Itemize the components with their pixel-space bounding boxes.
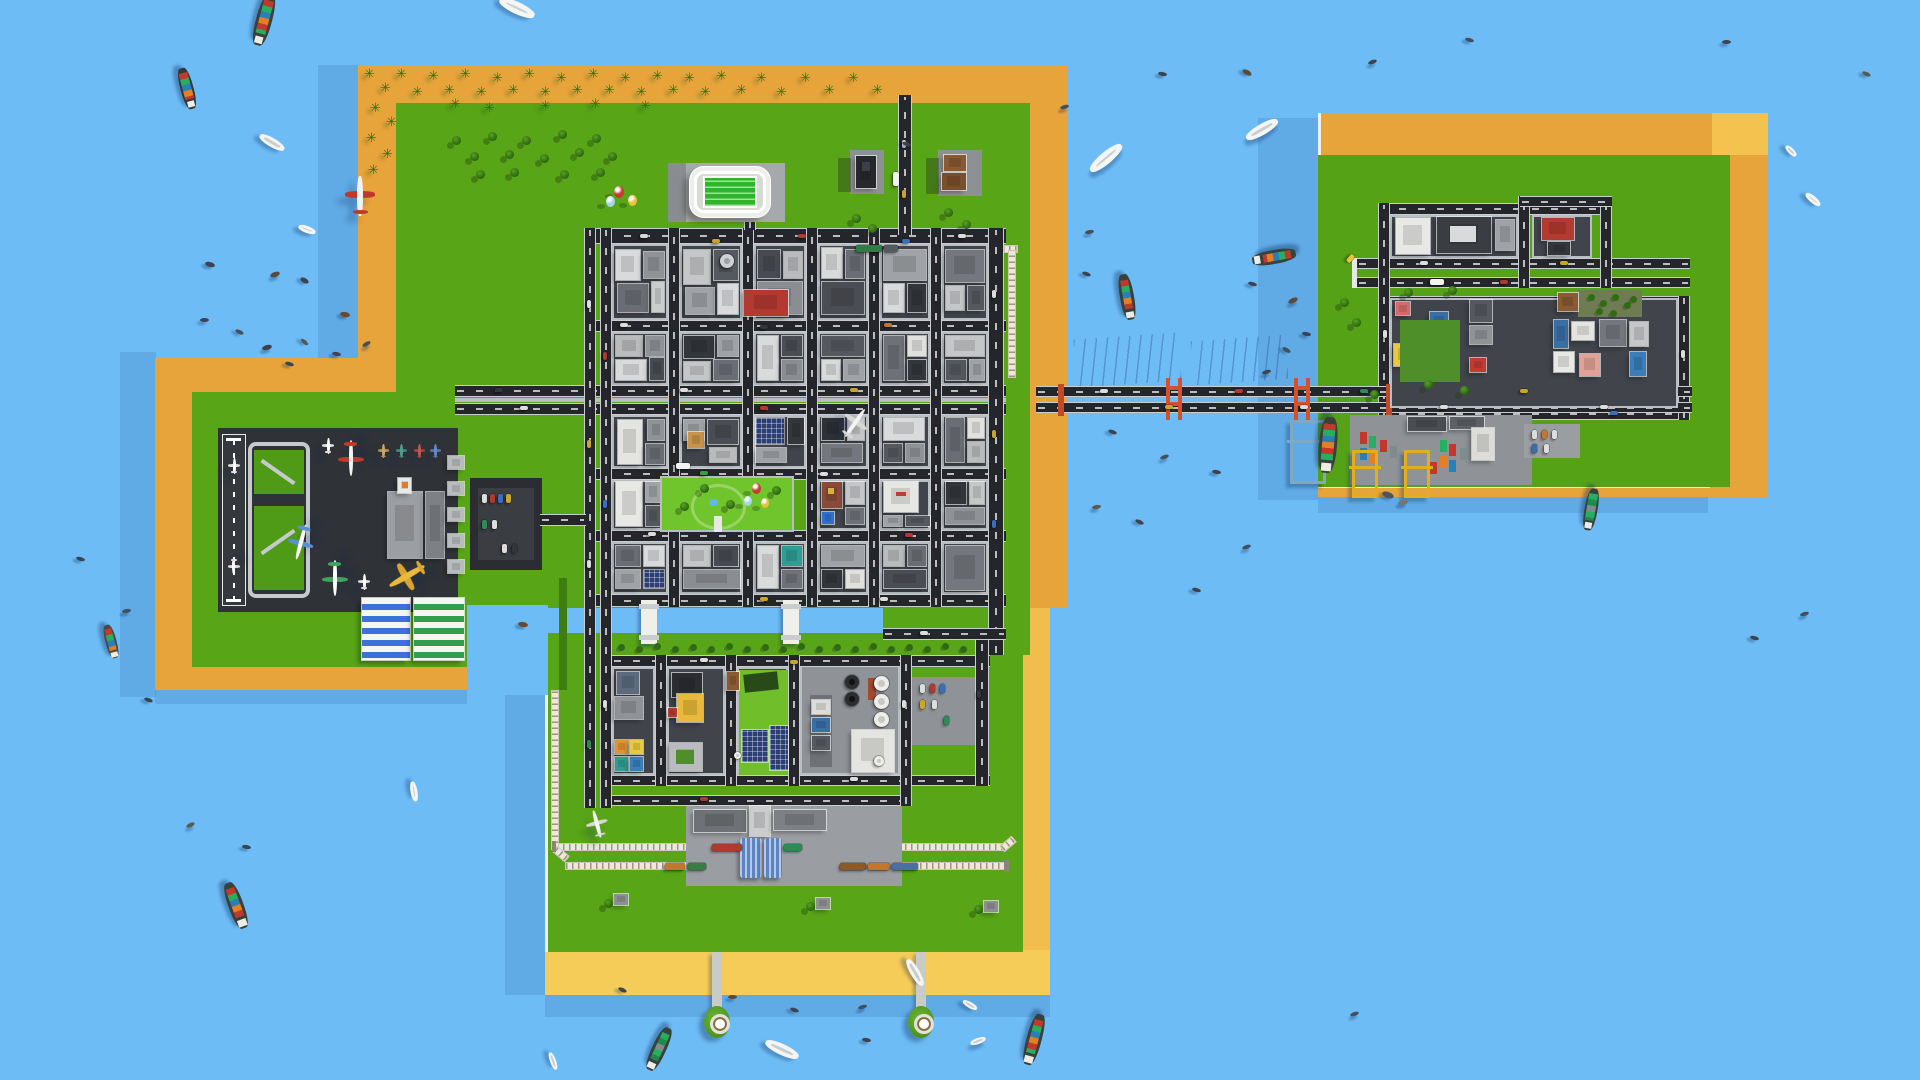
solar-panels	[756, 418, 784, 444]
road	[612, 775, 990, 786]
tree	[700, 484, 709, 493]
tree	[522, 136, 531, 145]
pier-lighthouse	[704, 952, 730, 1040]
building	[782, 360, 802, 380]
train-car	[884, 245, 898, 252]
solar-panels	[770, 726, 788, 770]
train-car	[688, 863, 706, 870]
airplane	[228, 458, 240, 474]
car	[648, 532, 656, 536]
building	[812, 718, 830, 732]
building	[968, 286, 984, 310]
ground-detail	[668, 163, 686, 222]
building	[718, 336, 738, 356]
building	[946, 336, 984, 356]
bush	[798, 643, 805, 650]
car	[700, 797, 708, 801]
tree	[476, 170, 485, 179]
road	[1520, 196, 1612, 207]
car	[520, 406, 528, 410]
storage-tank	[874, 694, 889, 709]
ground-detail	[226, 438, 241, 441]
tree	[772, 486, 781, 495]
car	[1440, 405, 1448, 409]
boat	[1800, 611, 1810, 617]
building	[782, 546, 802, 566]
building	[946, 418, 964, 462]
palm-tree: ✳	[364, 70, 376, 82]
car	[920, 684, 925, 693]
building	[908, 360, 926, 380]
car	[940, 684, 945, 693]
car	[977, 690, 981, 698]
road	[883, 628, 1006, 640]
car	[506, 494, 511, 503]
tree	[596, 168, 605, 177]
bush	[906, 644, 913, 651]
ground-detail	[1440, 440, 1447, 452]
tree	[974, 905, 983, 914]
building	[448, 482, 464, 495]
palm-tree: ✳	[800, 74, 812, 86]
boat	[300, 338, 309, 347]
bush	[942, 643, 949, 650]
stadium	[690, 167, 770, 217]
tree	[1448, 286, 1457, 295]
building	[388, 492, 422, 558]
boat	[1212, 469, 1222, 475]
road	[455, 385, 1006, 397]
building	[758, 546, 778, 588]
building	[822, 248, 842, 278]
crane	[1352, 450, 1378, 498]
building	[946, 482, 966, 504]
building	[646, 482, 660, 502]
tree	[575, 148, 584, 157]
building	[646, 444, 664, 464]
building	[448, 508, 464, 521]
building	[884, 516, 902, 526]
building	[822, 444, 862, 462]
car	[884, 323, 892, 327]
building	[714, 360, 738, 380]
car	[700, 658, 708, 662]
boat	[299, 276, 309, 285]
building	[970, 360, 984, 380]
car	[495, 388, 503, 392]
canal-footbridge	[783, 600, 799, 644]
road	[600, 228, 612, 808]
car	[712, 239, 720, 243]
car	[1681, 350, 1685, 358]
bridge-tower	[1166, 378, 1182, 420]
water-shadow	[155, 688, 467, 704]
car	[1383, 330, 1387, 338]
palm-tree: ✳	[428, 72, 440, 84]
car	[1544, 444, 1549, 453]
ferry-ship	[763, 1037, 800, 1062]
bush	[708, 646, 715, 653]
railway	[551, 690, 559, 850]
storage-tank	[734, 752, 741, 759]
building	[448, 456, 464, 469]
car	[603, 352, 607, 360]
car	[992, 290, 996, 298]
building	[684, 546, 710, 566]
building	[946, 286, 964, 310]
building	[618, 420, 642, 464]
road	[584, 530, 1006, 542]
ground-detail	[1400, 320, 1460, 382]
boat	[1158, 71, 1168, 77]
hot-air-balloon	[606, 196, 615, 207]
building	[1554, 320, 1568, 348]
ferry-ship	[969, 1035, 986, 1046]
building	[630, 757, 643, 771]
car	[680, 388, 688, 392]
palm-tree: ✳	[412, 88, 424, 100]
car	[992, 430, 996, 438]
building	[1470, 326, 1492, 344]
hangar	[414, 598, 464, 660]
building	[684, 362, 710, 380]
tree	[604, 899, 613, 908]
car	[902, 239, 910, 243]
bush	[834, 644, 841, 651]
hangar	[362, 598, 410, 660]
road	[806, 228, 818, 607]
bus	[1430, 279, 1444, 285]
car	[1500, 280, 1508, 284]
palm-tree: ✳	[756, 74, 768, 86]
cargo-ship	[101, 624, 120, 660]
boat	[1722, 40, 1731, 44]
building	[946, 508, 984, 524]
building	[884, 444, 902, 462]
building	[1542, 218, 1574, 240]
train-car	[892, 863, 918, 870]
building	[684, 336, 714, 358]
palm-tree: ✳	[604, 86, 616, 98]
train-car	[856, 245, 882, 252]
palm-tree: ✳	[872, 86, 884, 98]
building	[1572, 322, 1594, 340]
game-viewport[interactable]: ✳✳✳✳✳✳✳✳✳✳✳✳✳✳✳✳✳✳✳✳✳✳✳✳✳✳✳✳✳✳✳✳✳✳✳✳✳✳✳✳	[0, 0, 1920, 1080]
building	[782, 336, 802, 356]
building	[1396, 218, 1430, 254]
palm-tree: ✳	[382, 150, 394, 162]
building	[714, 546, 738, 566]
tree	[540, 154, 549, 163]
car	[587, 300, 591, 308]
car	[1520, 389, 1528, 393]
car	[920, 700, 925, 709]
car	[482, 520, 487, 529]
bush	[726, 643, 733, 650]
building	[615, 740, 628, 754]
building	[1470, 300, 1492, 322]
tree	[852, 214, 861, 223]
building	[846, 250, 864, 278]
car	[992, 520, 996, 528]
bush	[1588, 294, 1595, 301]
boat	[1242, 544, 1252, 551]
building	[908, 284, 926, 312]
road	[900, 655, 912, 806]
ground-detail	[559, 578, 567, 690]
building	[1472, 428, 1494, 460]
road	[988, 228, 1004, 655]
ground-detail	[896, 492, 906, 496]
cargo-ship	[1116, 273, 1138, 321]
building	[944, 155, 966, 171]
bush	[924, 646, 931, 653]
building	[648, 420, 664, 440]
airplane	[345, 176, 375, 216]
car	[820, 472, 828, 476]
building	[630, 740, 643, 754]
boat	[186, 821, 196, 828]
road	[1600, 196, 1612, 288]
bush	[960, 646, 967, 653]
cargo-ship	[221, 880, 252, 930]
car	[760, 406, 768, 410]
airplane	[414, 444, 425, 458]
building	[652, 282, 664, 312]
ground-detail	[1380, 440, 1387, 452]
building	[1580, 354, 1600, 376]
train-car	[840, 863, 866, 870]
building	[448, 560, 464, 573]
palm-tree: ✳	[716, 72, 728, 84]
building	[750, 806, 770, 836]
building	[684, 250, 710, 284]
building	[710, 448, 736, 462]
palm-tree: ✳	[652, 72, 664, 84]
palm-tree: ✳	[450, 100, 462, 112]
building	[846, 570, 864, 588]
building	[618, 284, 648, 312]
building	[782, 570, 802, 588]
road	[584, 320, 1006, 332]
car	[790, 660, 798, 664]
car	[620, 323, 628, 327]
car	[1542, 430, 1547, 439]
palm-tree: ✳	[590, 100, 602, 112]
building	[816, 898, 830, 909]
building	[968, 442, 984, 462]
palm-tree: ✳	[700, 88, 712, 100]
car	[958, 234, 966, 238]
tree	[592, 134, 601, 143]
car	[603, 500, 607, 508]
ground-detail	[402, 482, 408, 488]
building	[968, 418, 984, 438]
car	[492, 520, 497, 529]
airplane	[430, 444, 441, 458]
car	[587, 560, 591, 568]
bush	[1600, 300, 1607, 307]
building	[822, 546, 864, 566]
bridge-cable-shadow	[1191, 335, 1289, 386]
ground-detail	[1460, 448, 1467, 460]
bush	[1612, 294, 1619, 301]
ground-detail	[1369, 436, 1376, 448]
canal-water	[467, 605, 548, 695]
bus	[893, 172, 899, 186]
building	[844, 360, 864, 380]
bush	[618, 644, 625, 651]
tree	[505, 150, 514, 159]
building	[616, 336, 642, 356]
hot-air-balloon	[761, 498, 769, 508]
airplane	[378, 444, 389, 458]
storage-tank	[720, 254, 734, 268]
palm-tree: ✳	[370, 104, 382, 116]
building	[616, 482, 642, 526]
building	[784, 252, 802, 278]
ground-detail	[926, 158, 939, 194]
palm-tree: ✳	[492, 74, 504, 86]
ferry-ship	[258, 132, 287, 154]
building	[1408, 417, 1446, 431]
train-car	[712, 844, 742, 851]
building	[744, 290, 788, 316]
ground-detail	[455, 398, 1006, 402]
building	[884, 250, 926, 280]
airplane	[322, 560, 348, 596]
palm-tree: ✳	[366, 134, 378, 146]
building	[946, 360, 966, 380]
building	[686, 288, 714, 314]
ground-detail	[1360, 432, 1367, 444]
building	[1558, 293, 1578, 311]
building	[822, 336, 864, 356]
palm-tree: ✳	[572, 86, 584, 98]
train-shed	[740, 838, 762, 878]
road	[975, 640, 989, 786]
ground-detail	[552, 841, 556, 852]
building	[756, 448, 786, 462]
hot-air-balloon	[628, 195, 637, 206]
road	[668, 228, 680, 607]
car	[850, 777, 858, 781]
car	[944, 716, 949, 725]
building	[616, 250, 640, 280]
storage-tank	[874, 676, 889, 691]
hot-air-balloon	[744, 496, 752, 506]
building	[646, 336, 664, 356]
tree	[962, 220, 971, 229]
bus	[676, 463, 690, 469]
boat	[1862, 70, 1872, 77]
bush	[1596, 308, 1603, 315]
crane	[1404, 450, 1430, 498]
ground-detail	[1449, 460, 1456, 472]
building	[946, 250, 984, 282]
building	[758, 336, 778, 380]
tree	[726, 500, 735, 509]
tree	[944, 208, 953, 217]
ground-detail	[828, 488, 834, 494]
bush	[762, 644, 769, 651]
tree	[510, 168, 519, 177]
boat	[242, 844, 252, 850]
boat	[1248, 281, 1258, 287]
building	[615, 757, 628, 771]
ground-detail	[1440, 456, 1447, 468]
car	[850, 388, 858, 392]
ferry-ship	[547, 1052, 559, 1071]
bush	[870, 643, 877, 650]
car	[932, 700, 937, 709]
tree	[680, 502, 689, 511]
building	[650, 358, 664, 380]
boat	[269, 270, 280, 278]
boat	[1135, 518, 1145, 525]
tree	[1340, 298, 1349, 307]
road	[612, 655, 990, 667]
boat	[76, 556, 86, 562]
ground-detail	[676, 750, 694, 764]
building	[884, 546, 904, 566]
car	[498, 494, 503, 503]
car	[1100, 389, 1108, 393]
building	[822, 282, 864, 314]
tree	[868, 224, 877, 233]
palm-tree: ✳	[386, 118, 398, 130]
boat	[144, 697, 154, 704]
boat	[1108, 429, 1118, 436]
road	[584, 468, 1006, 480]
palm-tree: ✳	[776, 88, 788, 100]
boat	[1350, 1011, 1360, 1018]
building	[942, 173, 966, 190]
ground-detail	[1352, 258, 1357, 288]
palm-tree: ✳	[848, 74, 860, 86]
ground-detail	[1390, 446, 1397, 458]
car	[1600, 405, 1608, 409]
building	[906, 444, 924, 462]
hot-air-balloon	[614, 186, 624, 198]
building	[906, 516, 930, 526]
railway	[1008, 250, 1016, 378]
palm-tree: ✳	[396, 70, 408, 82]
palm-tree: ✳	[824, 86, 836, 98]
cargo-ship	[250, 0, 279, 47]
ground-detail	[838, 158, 851, 192]
boat	[1750, 635, 1760, 641]
car	[1610, 411, 1618, 415]
car	[920, 631, 928, 635]
hot-air-balloon	[752, 483, 761, 494]
road	[742, 228, 754, 607]
bush	[672, 646, 679, 653]
building	[668, 708, 677, 717]
ferry-ship	[497, 0, 537, 21]
ground-detail	[1450, 226, 1476, 242]
building	[727, 672, 739, 690]
cargo-ship	[175, 67, 198, 111]
building	[884, 336, 904, 380]
cargo-ship	[1020, 1012, 1048, 1066]
palm-tree: ✳	[508, 86, 520, 98]
train-car	[868, 863, 890, 870]
bush	[690, 644, 697, 651]
road	[655, 655, 667, 786]
ground-detail	[226, 599, 241, 602]
bush	[1624, 302, 1631, 309]
